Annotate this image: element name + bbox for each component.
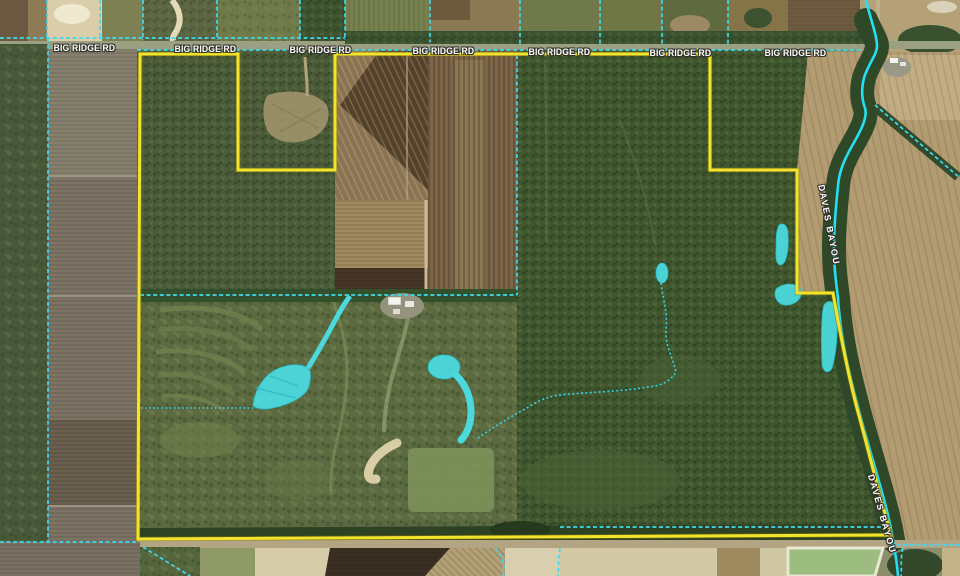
satellite-map[interactable]: BIG RIDGE RD BIG RIDGE RD BIG RIDGE RD B…	[0, 0, 960, 576]
west-fields	[0, 44, 137, 544]
road-label-big-ridge-rd: BIG RIDGE RD	[765, 48, 827, 58]
central-plowed-fields	[335, 50, 517, 293]
road-label-big-ridge-rd: BIG RIDGE RD	[413, 46, 475, 56]
south-field-strip	[0, 540, 960, 576]
road-label-big-ridge-rd: BIG RIDGE RD	[650, 48, 712, 58]
road-label-big-ridge-rd: BIG RIDGE RD	[529, 47, 591, 57]
road-label-big-ridge-rd: BIG RIDGE RD	[290, 45, 352, 55]
road-label-big-ridge-rd: BIG RIDGE RD	[175, 44, 237, 54]
road-label-big-ridge-rd: BIG RIDGE RD	[54, 43, 116, 53]
small-forest-pond	[656, 263, 668, 283]
satellite-imagery	[0, 0, 960, 576]
